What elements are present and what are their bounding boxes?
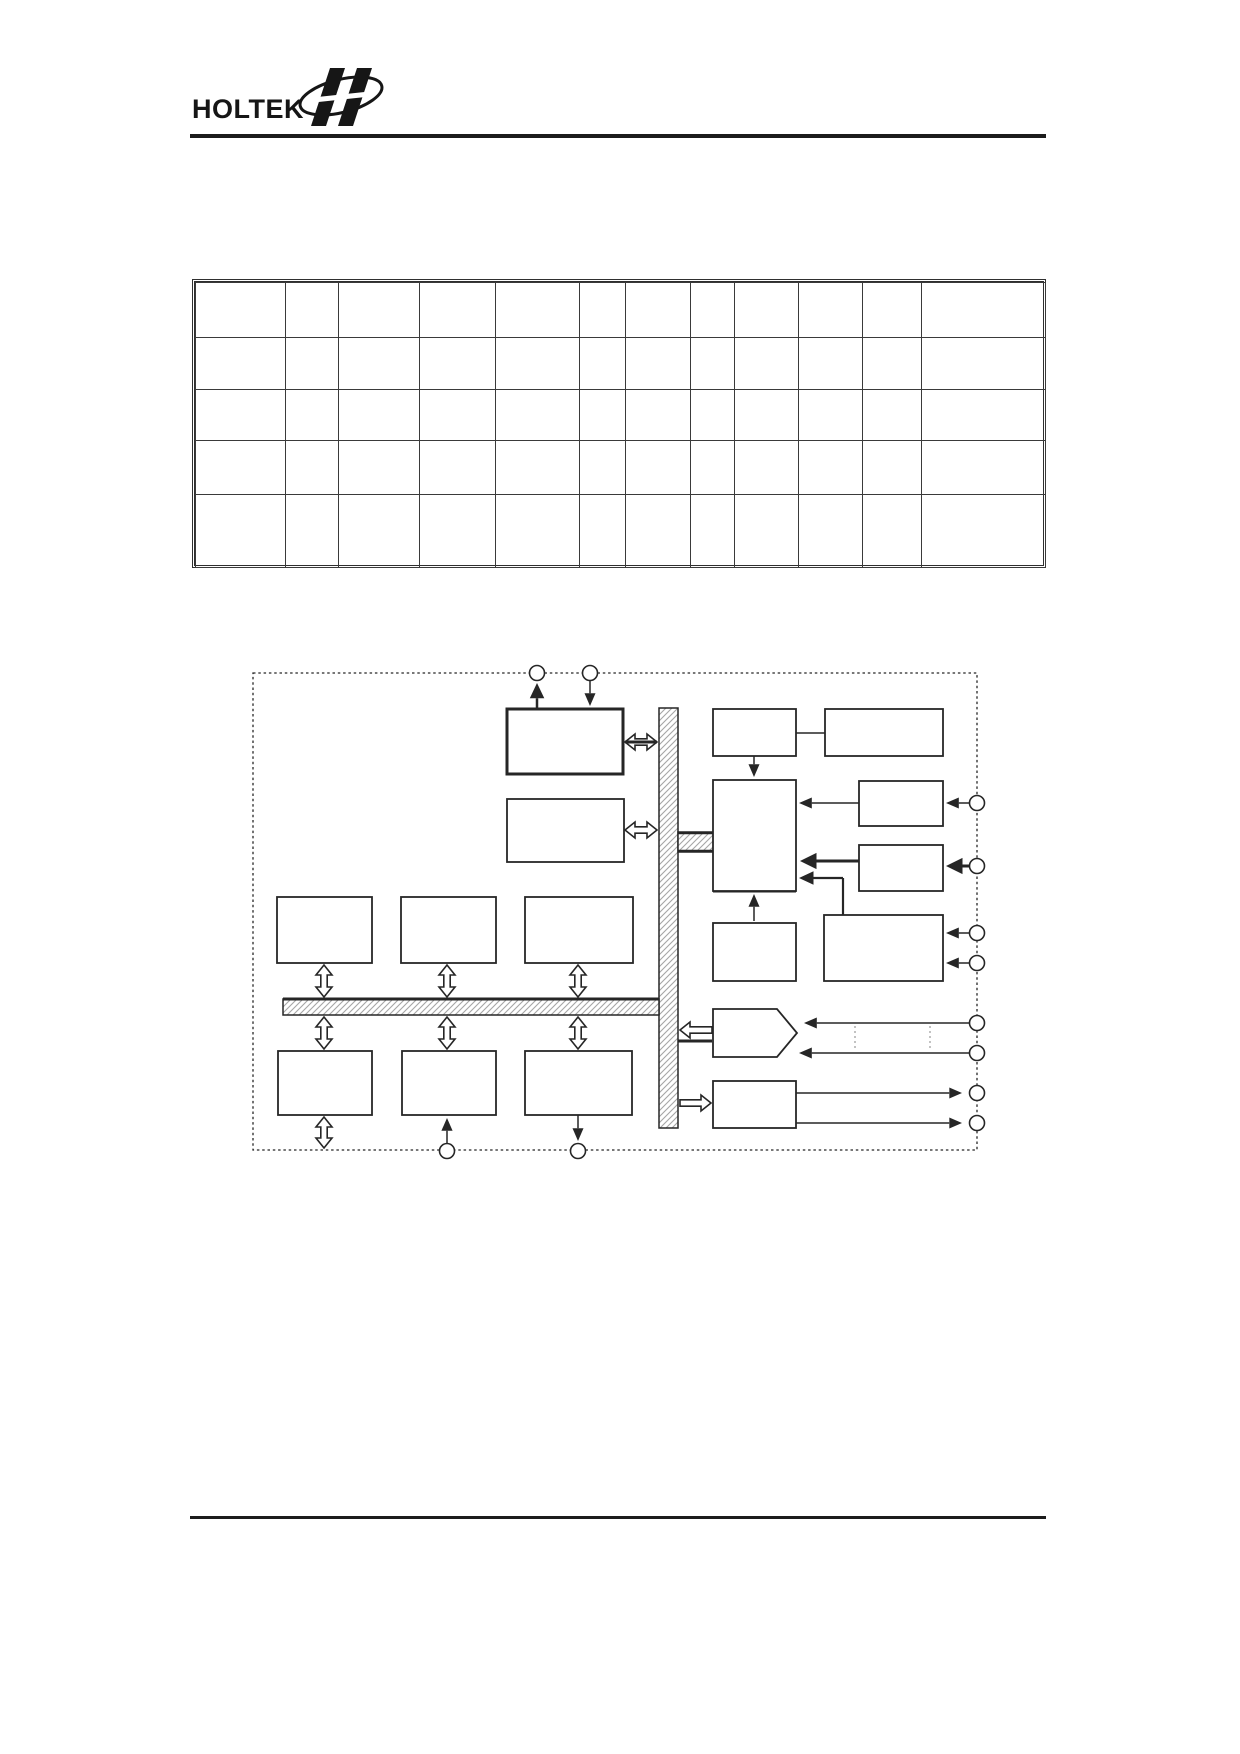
box-row2-left [278,1051,372,1115]
table-cell [420,283,496,338]
box-row2-right [525,1051,632,1115]
pin-circle [970,1086,985,1101]
table-cell [339,283,420,338]
cpu-bus-stub [678,832,714,852]
holtek-logo: HOLTEK [190,60,390,132]
arrowhead [573,1128,584,1141]
table-cell [286,390,339,441]
brand-text: HOLTEK [192,94,304,124]
arrowhead [799,871,814,884]
box-row1-middle [401,897,496,963]
table-cell [339,338,420,390]
table-cell [580,338,626,390]
table-cell [339,390,420,441]
row1-middle-link [439,965,455,997]
table-cell [691,338,735,390]
arrowhead [749,764,760,777]
row1-right-link [570,965,586,997]
table-cell [735,390,799,441]
table-cell [691,283,735,338]
arrowhead [441,1118,452,1131]
box-row2-middle [402,1051,496,1115]
table-row [196,338,1046,390]
table-cell [626,495,691,568]
horizontal-bus [283,999,659,1015]
table-cell [863,338,922,390]
box-cpu [713,780,796,891]
arrowhead [946,928,959,939]
table-cell [196,441,286,495]
table-row [196,283,1046,338]
box-right-a [859,781,943,826]
box-mid-center [507,799,624,862]
table-cell [496,338,580,390]
table-cell [420,441,496,495]
table-cell [580,441,626,495]
box-top-center [507,709,623,774]
pin-circle [970,1016,985,1031]
table-cell [735,283,799,338]
table-cell [496,283,580,338]
table-cell [922,338,1046,390]
bus-link-mid [625,822,657,838]
table-cell [496,441,580,495]
box-below-cpu [713,923,796,981]
pin-circle [970,1046,985,1061]
table-cell [863,495,922,568]
arrowhead [585,693,596,706]
arrowhead [949,1088,962,1099]
table-cell [420,338,496,390]
pin-circle [440,1144,455,1159]
table-cell [922,441,1046,495]
table-cell [339,441,420,495]
table-cell [626,283,691,338]
arrowhead [946,958,959,969]
header-rule [190,134,1046,138]
box-bottom-right-wide [824,915,943,981]
pin-circle [970,859,985,874]
row2-middle-link [439,1017,455,1049]
table-cell [799,283,863,338]
table-cell [922,495,1046,568]
table-cell [286,283,339,338]
table-cell [196,390,286,441]
arrowhead [530,683,545,698]
row2-right-link [570,1017,586,1049]
pin-circle [571,1144,586,1159]
table-cell [863,283,922,338]
table-cell [922,283,1046,338]
table-cell [286,441,339,495]
arrowhead [946,798,959,809]
table-cell [580,283,626,338]
box-right-top-wide [825,709,943,756]
table-cell [863,390,922,441]
table-cell [735,495,799,568]
arrowhead [800,853,817,869]
arrowhead [749,894,760,907]
box-bottom-output [713,1081,796,1128]
box-row1-left [277,897,372,963]
arrowhead [804,1018,817,1029]
table-cell [691,441,735,495]
box-right-b [859,845,943,891]
pin-circle [530,666,545,681]
spec-table-frame [192,279,1046,568]
table-row [196,390,1046,441]
table-cell [496,390,580,441]
table-cell [626,338,691,390]
pin-circle [583,666,598,681]
table-cell [735,338,799,390]
table-cell [626,390,691,441]
bus-to-output-arrow [680,1095,711,1111]
table-cell [496,495,580,568]
table-cell [799,495,863,568]
vertical-bus [659,708,678,1128]
table-cell [339,495,420,568]
bus-link-top [625,734,657,750]
table-cell [799,441,863,495]
table-cell [799,390,863,441]
table-cell [691,390,735,441]
arrowhead [949,1118,962,1129]
pin-circle [970,956,985,971]
table-cell [735,441,799,495]
table-cell [580,390,626,441]
table-cell [196,338,286,390]
table-cell [196,283,286,338]
table-cell [691,495,735,568]
arrowhead [799,1048,812,1059]
input-mux-pentagon [713,1009,797,1057]
pin-circle [970,796,985,811]
table-cell [420,390,496,441]
table-cell [420,495,496,568]
table-cell [922,390,1046,441]
table-cell [626,441,691,495]
table-cell [286,495,339,568]
row2-left-link [316,1017,332,1049]
table-row [196,441,1046,495]
mux-to-bus-arrow [680,1022,712,1038]
table-row [196,495,1046,568]
pin-circle [970,926,985,941]
row2-left-down-link [316,1117,332,1148]
table-cell [799,338,863,390]
row1-left-link [316,965,332,997]
diagram-dashed-frame [253,673,977,1150]
pin-circle [970,1116,985,1131]
box-row1-right [525,897,633,963]
datasheet-page: HOLTEK [0,0,1240,1754]
arrowhead [946,858,963,874]
box-right-top-small [713,709,796,756]
table-cell [286,338,339,390]
footer-rule [190,1516,1046,1519]
arrowhead [799,798,812,809]
table-cell [580,495,626,568]
spec-table [195,282,1046,568]
table-cell [863,441,922,495]
block-diagram [0,0,1240,1754]
holtek-wings-ellipse-icon [296,68,385,126]
table-cell [196,495,286,568]
